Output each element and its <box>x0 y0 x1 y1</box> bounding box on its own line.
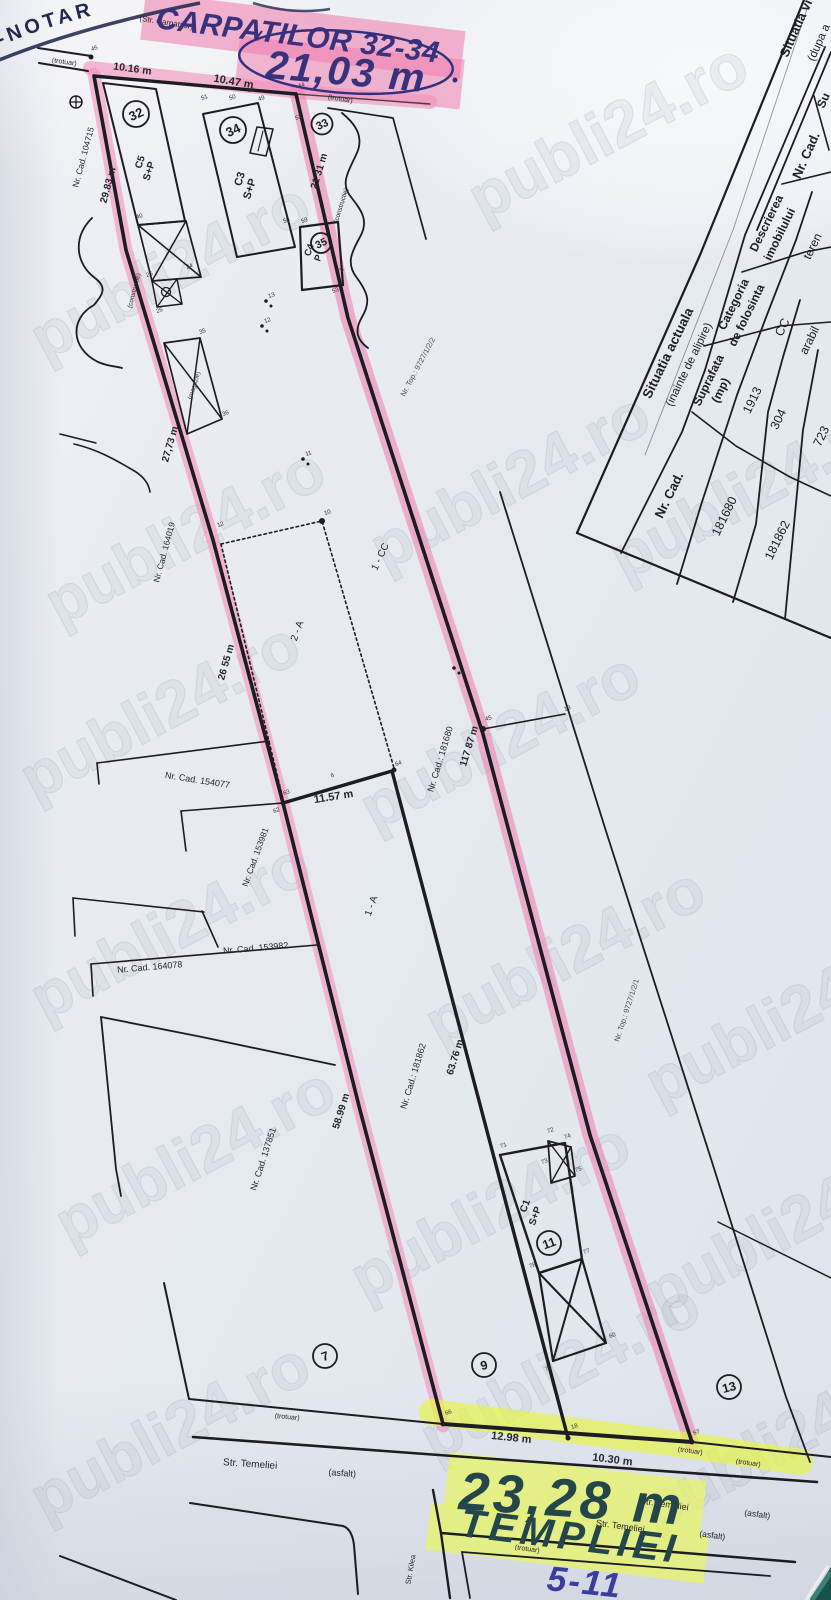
svg-text:5-11: 5-11 <box>545 1559 624 1600</box>
svg-text:(asfalt): (asfalt) <box>328 1467 356 1479</box>
